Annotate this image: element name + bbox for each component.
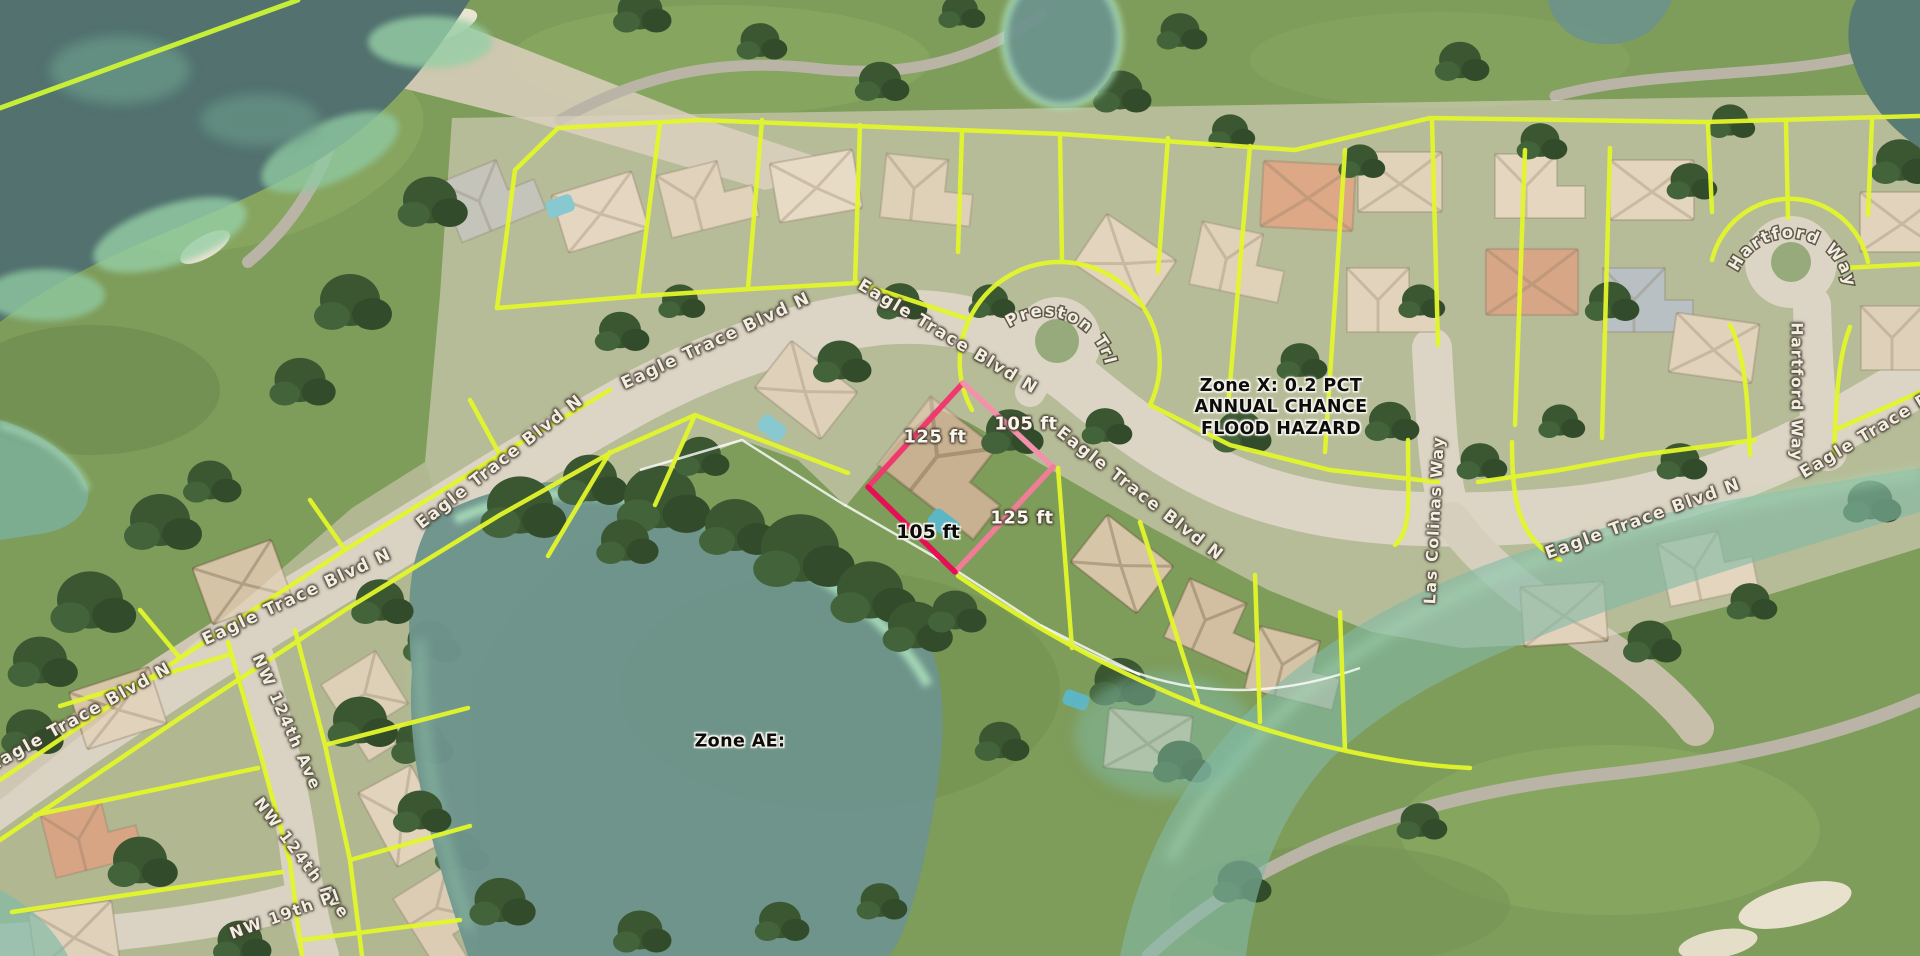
map-viewport[interactable]: Preston Trl Hartford Way Eagle Trace Blv… — [0, 0, 1920, 956]
aerial-imagery: Preston Trl Hartford Way — [0, 0, 1920, 956]
